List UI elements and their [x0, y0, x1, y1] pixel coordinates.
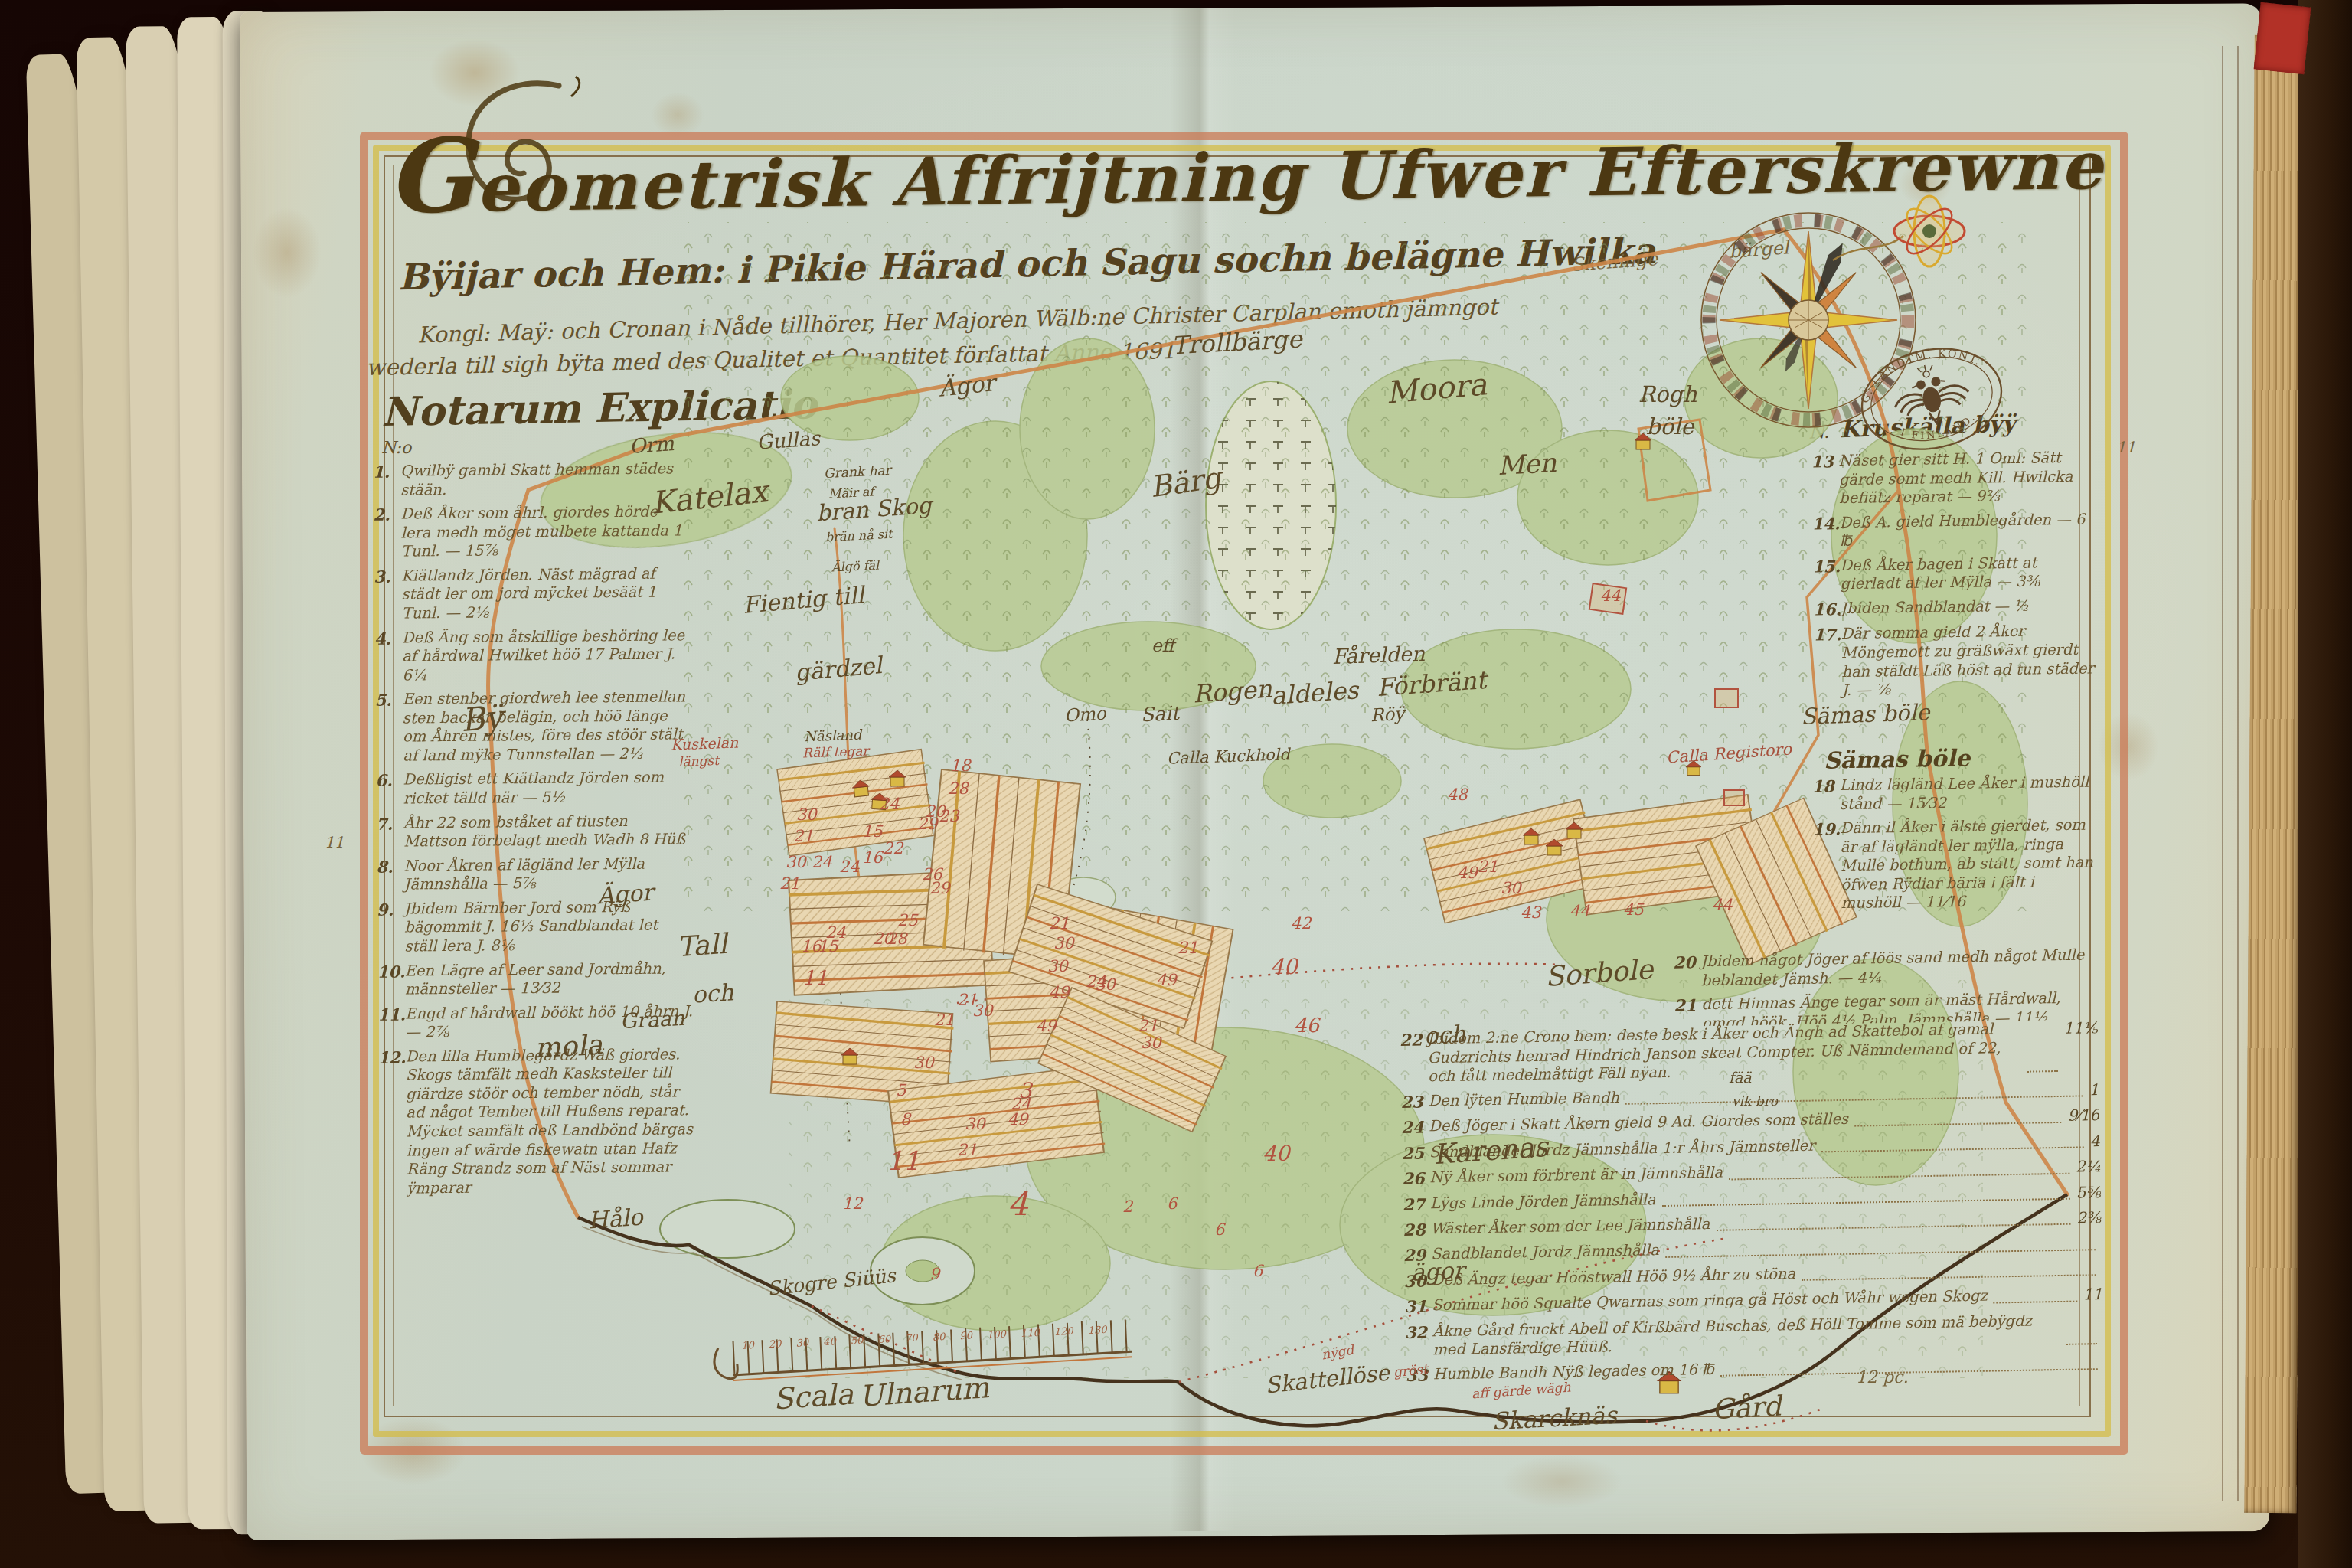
left-legend-column: 1. Qwilbÿ gambl Skatt hemman städes stää… — [373, 459, 697, 1360]
map-place-label: Orm — [629, 432, 675, 458]
legend-item-text: Jbidem 2:ne Crono hem: deste besk i Åker… — [1427, 1020, 2021, 1086]
legend-item-text: Dänn il Åker i älste gierdet, som är af … — [1840, 816, 2099, 913]
plot-number: 2 — [1122, 1197, 1132, 1216]
map-place-label: eff — [1151, 635, 1174, 655]
legend-item-number: 21 — [1674, 995, 1702, 1026]
plot-number: 30 — [1141, 1034, 1161, 1052]
legend-item-value: 4 — [2090, 1132, 2100, 1152]
legend-item: 1. Qwilbÿ gambl Skatt hemman städes stää… — [373, 459, 690, 500]
dotted-leader — [1821, 1132, 2084, 1152]
plot-number: 30 — [1501, 879, 1521, 897]
legend-item: 9. Jbidem Bärnber Jord som Rÿß bägommit … — [377, 897, 694, 956]
red-bookmark-tab — [2254, 2, 2311, 74]
legend-item-number: 14. — [1811, 514, 1840, 552]
map-place-label: Sämas böle — [1800, 699, 1930, 730]
legend-item-text: Där somma gield 2 Åker Möngemott zu gräß… — [1841, 622, 2099, 701]
map-place-label: mola — [534, 1029, 603, 1064]
plot-number: 25 — [897, 911, 918, 929]
legend-item-text: Qwilbÿ gambl Skatt hemman städes stään. — [400, 459, 690, 499]
legend-item-text: Sandblandet Jordz Jämnshålla — [1431, 1242, 1659, 1266]
legend-item: 3. Kiätlandz Jörden. Näst mägrad af städ… — [374, 564, 691, 623]
title-swash — [398, 73, 597, 242]
plot-number: 40 — [1263, 1141, 1290, 1166]
legend-item-number: 8. — [376, 857, 403, 894]
plot-number: 42 — [1291, 914, 1312, 933]
plot-number: 12 — [842, 1194, 863, 1213]
legend-item: 4. Deß Äng som åtskillige beshöring lee … — [374, 626, 692, 685]
map-place-label: Gullas — [756, 426, 821, 454]
dotted-leader — [1716, 1209, 2070, 1232]
plot-number: 9 — [929, 1265, 939, 1283]
legend-item-text: Nÿ Åker som förbrent är in Jämnshålla — [1429, 1164, 1723, 1189]
map-place-label: Näsland — [804, 727, 862, 745]
map-place-label: Fårelden — [1331, 642, 1425, 668]
legend-item-number: 9. — [377, 900, 405, 956]
plot-number: 21 — [1478, 857, 1498, 876]
plot-number: 45 — [1623, 900, 1644, 919]
legend-item-number: 26 — [1402, 1168, 1429, 1189]
map-place-label: Mäir af — [828, 484, 874, 501]
map-place-label: Sait — [1140, 702, 1180, 727]
legend-item-text: Jbiden Sandblandat — ½ — [1841, 596, 2098, 619]
plot-number: 15 — [862, 822, 883, 841]
plot-number: 49 — [1049, 983, 1070, 1001]
plot-number: 6 — [1253, 1262, 1263, 1280]
legend-item: 14. Deß A. gield Humblegården — 6 ℔ — [1811, 510, 2097, 551]
legend-item-value: 2⅜ — [2076, 1208, 2102, 1229]
legend-item-number: 2. — [373, 505, 401, 562]
map-place-label: Scala — [773, 1377, 855, 1416]
legend-item-text: Humble Bandh Nÿß legades om 16 ℔ — [1433, 1361, 1714, 1386]
legend-item-text: Jbidem Bärnber Jord som Rÿß bägommit J. … — [404, 897, 694, 956]
legend-item-text: Jbidem något Jöger af löös sand medh någ… — [1700, 946, 2099, 990]
plot-number: 44 — [1600, 586, 1621, 605]
legend-item-value: 11 — [2082, 1285, 2102, 1305]
legend-item-text: Deß Åker bagen i Skatt at gierladt af le… — [1840, 553, 2098, 594]
plot-number: 8 — [900, 1110, 910, 1129]
legend-item-number: 27 — [1403, 1194, 1430, 1215]
legend-item: 5. Een stenber giordweh lee stenmellan s… — [374, 688, 692, 766]
plot-number: 4 — [1008, 1185, 1028, 1223]
plot-number: 24 — [879, 795, 900, 813]
legend-item-text: Lindz lägländ Lee Åker i mushöll stånd —… — [1839, 773, 2097, 814]
photo-of-atlas-page: { "page": { "title": "Geometrisk Affrijt… — [0, 0, 2352, 1568]
legend-item-number: 17. — [1813, 625, 1841, 701]
plot-number: 30 — [796, 805, 817, 824]
legend-item-text: Een stenber giordweh lee stenmellan sten… — [402, 688, 692, 766]
plot-number: 21 — [934, 1011, 955, 1029]
plot-number: 6 — [1214, 1220, 1224, 1239]
dotted-leader — [1802, 1259, 2096, 1281]
map-place-label: böle — [1646, 413, 1694, 439]
right-legend-column-lower: 18 Lindz lägländ Lee Åker i mushöll stån… — [1811, 773, 2099, 946]
dotted-leader — [2027, 1019, 2058, 1072]
plot-number: 28 — [887, 929, 907, 948]
plot-number: 16 — [801, 937, 822, 955]
plot-number: 44 — [1712, 896, 1733, 914]
legend-item-value: 2¼ — [2076, 1157, 2101, 1178]
plot-number: 30 — [1053, 934, 1074, 952]
legend-item-number: 20 — [1673, 952, 1701, 991]
map-place-label: aldeles — [1270, 675, 1360, 710]
legend-item-number: 19. — [1812, 819, 1841, 913]
legend-item-value: 9⁄16 — [2067, 1106, 2099, 1126]
legend-item-text: Kiätlandz Jörden. Näst mägrad af städt l… — [401, 564, 691, 623]
plot-number: 49 — [1036, 1017, 1057, 1035]
dotted-leader — [2066, 1311, 2098, 1345]
legend-item-number: 13 — [1811, 452, 1839, 508]
map-place-label: vik bro — [1732, 1093, 1778, 1109]
legend-item: 18 Lindz lägländ Lee Åker i mushöll stån… — [1811, 773, 2097, 814]
dotted-leader — [1720, 1354, 2098, 1377]
legend-item-number: 24 — [1401, 1117, 1429, 1138]
legend-item-number: 7. — [376, 814, 403, 851]
legend-item-number: 16. — [1813, 599, 1841, 620]
plot-number: 40 — [1270, 954, 1298, 979]
legend-item: 7. Åhr 22 som bståket af tiusten Mattson… — [376, 812, 693, 852]
svg-text:G. LANDTM. KONT.: G. LANDTM. KONT. — [1851, 337, 1988, 407]
legend-item-number: 23 — [1400, 1092, 1428, 1112]
legend-item-number: 25 — [1402, 1143, 1429, 1164]
legend-item-text: Deß Äng som åtskillige beshöring lee af … — [402, 626, 692, 685]
plot-number: 18 — [950, 756, 971, 775]
legend-item-number: 1. — [373, 462, 400, 500]
legend-item-text: Den lÿten Humble Bandh — [1428, 1089, 1619, 1112]
plot-number: 21 — [779, 874, 800, 893]
map-place-label: Omo — [1063, 704, 1106, 726]
plot-number: 49 — [1156, 971, 1177, 989]
book-cover-edge — [2298, 0, 2352, 1568]
plot-number: 30 — [786, 853, 806, 871]
map-place-label: Men — [1497, 447, 1557, 481]
legend-item-number: 31 — [1404, 1297, 1432, 1318]
plot-number: 30 — [965, 1115, 985, 1133]
dotted-leader — [1664, 1234, 2096, 1258]
legend-item: 32 Åkne Gård fruckt Abell of Kirßbärd Bu… — [1405, 1311, 2104, 1361]
legend-item: 17. Där somma gield 2 Åker Möngemott zu … — [1813, 622, 2099, 701]
plot-number: 11 — [802, 966, 828, 989]
plot-number: 3 — [1018, 1078, 1032, 1103]
margin-mark-right: 11 — [2116, 438, 2135, 456]
plot-number: 44 — [1570, 902, 1590, 920]
legend-item-number: 4. — [374, 629, 403, 685]
plot-number: 43 — [1521, 903, 1541, 922]
plot-number: 23 — [939, 807, 959, 825]
right-column-subheader: Sämas böle — [1824, 744, 1971, 773]
legend-item: 10. Een Lägre af Leer sand Jordmåhn, män… — [377, 959, 694, 1000]
legend-item-text: Åkne Gård fruckt Abell of Kirßbärd Busch… — [1432, 1312, 2061, 1360]
plot-number: 21 — [1049, 914, 1070, 933]
plot-number: 30 — [1095, 975, 1116, 994]
plot-number: 22 — [883, 839, 903, 857]
map-place-label: Gård — [1711, 1390, 1782, 1426]
map-place-label: Tall — [676, 928, 728, 962]
dotted-leader — [1661, 1183, 2069, 1207]
plot-number: 30 — [972, 1001, 993, 1020]
plot-number: 28 — [948, 779, 969, 798]
book-fore-edge — [2244, 35, 2306, 1513]
plot-number: 21 — [1138, 1017, 1158, 1035]
legend-item-number: 10. — [377, 962, 405, 999]
legend-item: 15. Deß Åker bagen i Skatt at gierladt a… — [1812, 553, 2098, 594]
plot-number: 29 — [929, 879, 950, 897]
legend-item-text: Den lilla Humblegårdz Wäß giordes. Skogs… — [406, 1045, 697, 1198]
legend-item-text: Deßligist ett Kiätlandz Jörden som ricke… — [403, 769, 692, 808]
page-curl-line-2 — [2237, 46, 2239, 1501]
legend-item-text: Deß Ängz tegar Hööstwall Höö 9½ Åhr zu s… — [1431, 1265, 1795, 1292]
legend-item-text: Deß Jöger i Skatt Åkern gield 9 Ad. Gior… — [1429, 1110, 1848, 1138]
plot-number: 21 — [793, 827, 814, 845]
map-place-label: ägor — [1410, 1256, 1465, 1286]
map-place-label: fää — [1729, 1069, 1752, 1086]
plot-number: 21 — [957, 1141, 978, 1159]
legend-item-text: Näset gier sitt H. 1 Oml: Sätt gärde som… — [1838, 448, 2096, 508]
map-place-label: Röÿ — [1370, 704, 1404, 725]
plot-number: 30 — [913, 1053, 934, 1072]
legend-item-text: Deß Åker som åhrl. giordes hörde lera me… — [400, 502, 691, 561]
legend-item-text: Wäster Åker som der Lee Jämnshålla — [1430, 1215, 1710, 1240]
map-place-label: Kuskelan — [671, 733, 739, 753]
plot-number: 24 — [839, 857, 860, 876]
dotted-leader — [1993, 1285, 2076, 1303]
legend-item-number: 15. — [1812, 557, 1841, 595]
legend-item: 19. Dänn il Åker i älste gierdet, som är… — [1812, 816, 2099, 914]
legend-item-number: 18 — [1811, 776, 1840, 815]
plot-number: 5 — [896, 1081, 906, 1099]
plot-number: 21 — [1178, 939, 1198, 957]
legend-item-number: 3. — [374, 567, 402, 623]
legend-item-text: Deß A. gield Humblegården — 6 ℔ — [1839, 510, 2097, 551]
legend-item: 16. Jbiden Sandblandat — ½ — [1813, 596, 2098, 620]
legend-item-text: Åhr 22 som bståket af tiusten Mattson fö… — [403, 812, 693, 851]
map-place-label: Rälf tegar — [802, 743, 869, 760]
legend-item-text: Een Lägre af Leer sand Jordmåhn, männste… — [405, 959, 694, 999]
legend-item-number: 28 — [1403, 1220, 1430, 1240]
plot-number: 30 — [1047, 957, 1068, 975]
dotted-leader — [1854, 1106, 2062, 1126]
plot-number: 49 — [1457, 864, 1478, 882]
legend-item-number: 5. — [374, 691, 403, 766]
legend-item-number: 11. — [377, 1004, 405, 1042]
legend-item-text: Lÿgs Linde Jörden Jämnshålla — [1430, 1191, 1656, 1215]
map-place-label: och — [1423, 1021, 1466, 1050]
legend-item: 2. Deß Åker som åhrl. giordes hörde lera… — [373, 502, 691, 561]
folio-note: 12 pc. — [1856, 1367, 1908, 1387]
bottom-right-legend-block: 22 Jbidem 2:ne Crono hem: deste besk i Å… — [1400, 1018, 2104, 1389]
legend-item-text: Sommar höö Squalte Qwarnas som ringa gå … — [1432, 1287, 1988, 1317]
plot-number: 48 — [1447, 786, 1468, 804]
map-place-label: Älgö fäl — [831, 557, 880, 574]
plot-number: 11 — [887, 1145, 920, 1176]
map-place-label: Rogen — [1192, 674, 1273, 708]
legend-item-value: 11⅕ — [2063, 1018, 2099, 1075]
plot-number: 46 — [1294, 1014, 1319, 1037]
legend-item: 13 Näset gier sitt H. 1 Oml: Sätt gärde … — [1811, 448, 2096, 508]
map-place-label: Bÿ — [459, 698, 505, 740]
legend-item-value: 5⅝ — [2076, 1183, 2101, 1204]
legend-item-number: 6. — [375, 771, 403, 808]
dotted-leader — [1625, 1080, 2083, 1105]
map-place-label: Rogh — [1638, 381, 1697, 407]
legend-item-value: 1 — [2089, 1080, 2099, 1101]
map-place-label: och — [691, 978, 734, 1008]
plot-number: 24 — [812, 853, 832, 871]
map-place-label: Ägor — [596, 878, 655, 909]
legend-item: 20 Jbidem något Jöger af löös sand medh … — [1673, 946, 2099, 991]
plot-number: 16 — [862, 848, 883, 867]
legend-item-number: 32 — [1405, 1322, 1433, 1361]
right-legend-items-20-21: 20 Jbidem något Jöger af löös sand medh … — [1673, 946, 2100, 1027]
dotted-leader — [1729, 1158, 2069, 1180]
legend-item-number: 12. — [378, 1047, 407, 1198]
map-place-label: längst — [678, 753, 720, 769]
stamp-top-text: G. LANDTM. KONT. — [1851, 337, 1988, 407]
title-ornament — [1830, 168, 2014, 299]
page-curl-line-1 — [2222, 46, 2223, 1501]
map-place-label: Graan — [619, 1006, 685, 1033]
legend-item: 6. Deßligist ett Kiätlandz Jörden som ri… — [375, 769, 692, 809]
legend-item: 12. Den lilla Humblegårdz Wäß giordes. S… — [378, 1045, 697, 1198]
map-place-label: Hålo — [587, 1204, 644, 1234]
margin-mark-left: 11 — [325, 833, 344, 851]
plot-number: 6 — [1167, 1194, 1177, 1213]
